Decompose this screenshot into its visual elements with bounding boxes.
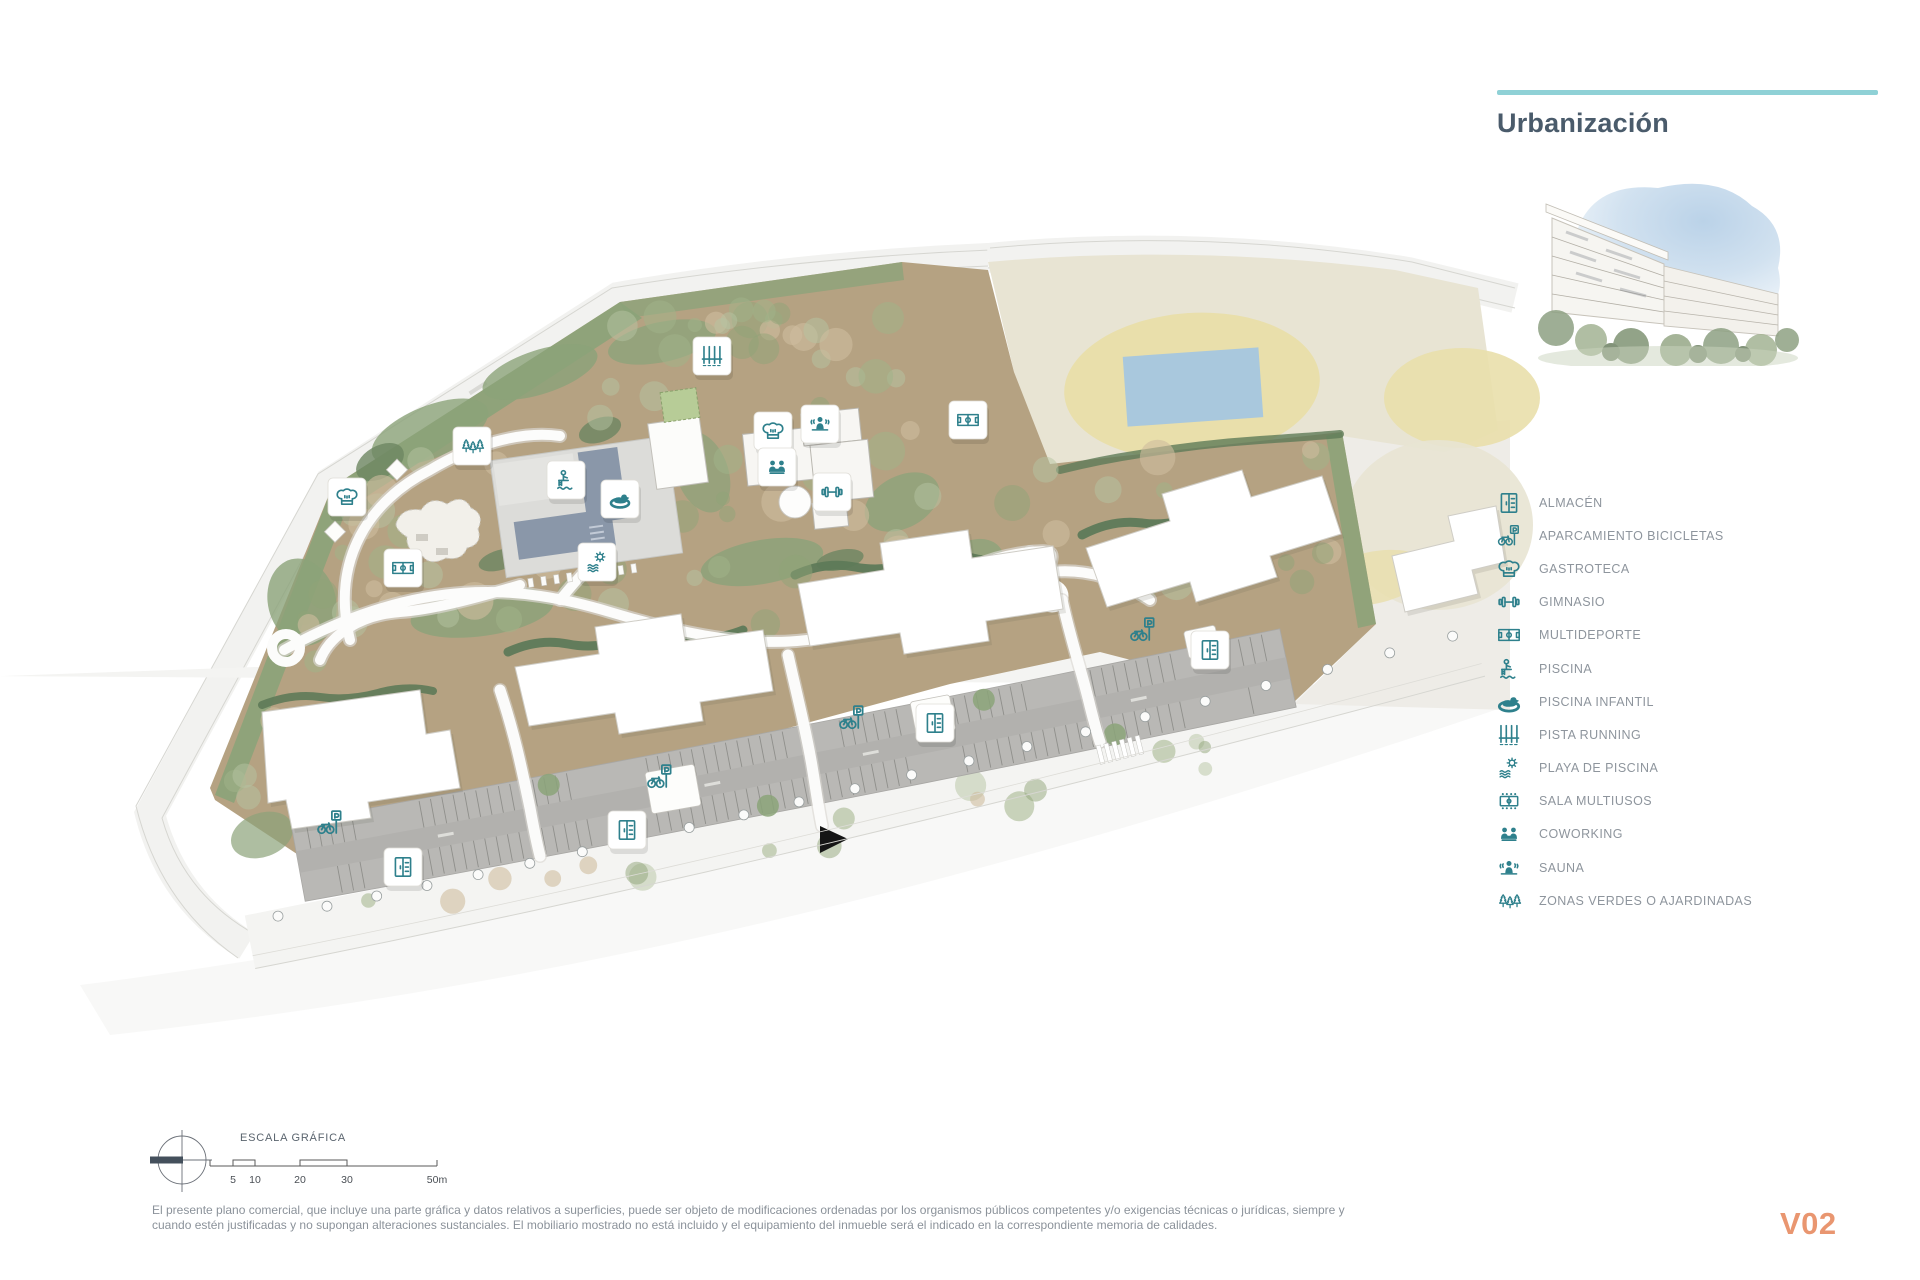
tree: [1198, 762, 1212, 776]
marker-sauna: [801, 405, 841, 448]
legend-item-label: ZONAS VERDES O AJARDINADAS: [1539, 894, 1752, 908]
pista-running-icon: [1492, 722, 1526, 748]
legend-item-sala-multiusos: SALA MULTIUSOS: [1492, 785, 1752, 818]
pool-house: [648, 417, 709, 490]
street-tree: [1140, 712, 1150, 722]
scale-tick-label: 50m: [427, 1174, 447, 1186]
marker-almacen: [1191, 631, 1231, 674]
tree: [658, 334, 691, 367]
street-tree: [850, 784, 860, 794]
page-title: Urbanización: [1497, 108, 1669, 139]
marker-gimnasio: [813, 473, 853, 516]
legend-item-pista-running: PISTA RUNNING: [1492, 718, 1752, 751]
tree: [587, 405, 613, 431]
legend-item-label: PLAYA DE PISCINA: [1539, 761, 1658, 775]
street-tree: [525, 858, 535, 868]
building-render-image: [1536, 166, 1800, 366]
tree: [872, 302, 904, 334]
street-tree: [907, 770, 917, 780]
parking-island: [538, 774, 560, 796]
legend-item-label: PISTA RUNNING: [1539, 728, 1641, 742]
tree: [914, 483, 941, 510]
legend-item-gimnasio: GIMNASIO: [1492, 586, 1752, 619]
legend-item-label: MULTIDEPORTE: [1539, 628, 1641, 642]
legend-item-zonas-verdes: ZONAS VERDES O AJARDINADAS: [1492, 884, 1752, 917]
sports-court: [660, 388, 700, 423]
marker-almacen: [608, 811, 648, 854]
legend-item-almacen: ALMACÉN: [1492, 486, 1752, 519]
tree: [308, 580, 337, 609]
legend-item-aparcamiento-bicicletas: APARCAMIENTO BICICLETAS: [1492, 519, 1752, 552]
amenities-legend: ALMACÉNAPARCAMIENTO BICICLETASGASTROTECA…: [1492, 486, 1752, 917]
tree: [1302, 441, 1319, 458]
tree: [1024, 779, 1047, 802]
legend-item-label: GASTROTECA: [1539, 562, 1630, 576]
tree: [1152, 740, 1175, 763]
street-tree: [322, 901, 332, 911]
tree: [719, 506, 735, 522]
north-compass: [150, 1130, 212, 1192]
legend-item-label: SAUNA: [1539, 861, 1584, 875]
legend-item-label: GIMNASIO: [1539, 595, 1605, 609]
legend-item-label: SALA MULTIUSOS: [1539, 794, 1652, 808]
version-label: V02: [1780, 1206, 1837, 1242]
street-tree: [577, 847, 587, 857]
legend-item-coworking: COWORKING: [1492, 818, 1752, 851]
marker-gastroteca: [328, 478, 368, 521]
legend-item-piscina: PISCINA: [1492, 652, 1752, 685]
graphic-scale: [210, 1160, 437, 1166]
disclaimer: El presente plano comercial, que incluye…: [152, 1203, 1442, 1233]
legend-item-gastroteca: GASTROTECA: [1492, 552, 1752, 585]
tree: [488, 867, 511, 890]
legend-item-multideporte: MULTIDEPORTE: [1492, 619, 1752, 652]
tree: [1095, 476, 1122, 503]
marker-pista-running: [693, 337, 733, 380]
marker-coworking: [758, 448, 798, 491]
tree: [644, 300, 677, 333]
tree: [496, 606, 522, 632]
zonas-verdes-icon: [1492, 888, 1526, 914]
gimnasio-icon: [1492, 589, 1526, 615]
legend-item-playa-de-piscina: PLAYA DE PISCINA: [1492, 752, 1752, 785]
street-tree: [794, 797, 804, 807]
scale-tick-label: 30: [341, 1174, 353, 1186]
scale-bar: ESCALA GRÁFICA 510203050m: [140, 1118, 500, 1198]
scale-tick-label: 10: [249, 1174, 261, 1186]
marker-piscina: [547, 461, 587, 504]
marker-almacen: [916, 704, 956, 747]
tree: [233, 764, 257, 788]
tree: [688, 318, 702, 332]
tree: [602, 378, 620, 396]
sala-multiusos-icon: [1492, 788, 1526, 814]
tree: [1140, 440, 1176, 476]
tree: [714, 445, 743, 474]
street-tree: [1323, 664, 1333, 674]
street-tree: [372, 891, 382, 901]
disclaimer-line1: El presente plano comercial, que incluye…: [152, 1203, 1345, 1217]
multideporte-icon: [1492, 622, 1526, 648]
coworking-icon: [1492, 821, 1526, 847]
tree: [1290, 570, 1315, 595]
street-tree: [1448, 631, 1458, 641]
street-tree: [1261, 681, 1271, 691]
legend-item-label: PISCINA INFANTIL: [1539, 695, 1654, 709]
tree: [1043, 520, 1070, 547]
street-tree: [1200, 696, 1210, 706]
street-tree: [1385, 648, 1395, 658]
tree: [867, 432, 906, 471]
street-tree: [739, 810, 749, 820]
tree: [625, 862, 648, 885]
tree: [579, 856, 597, 874]
sauna-icon: [1492, 855, 1526, 881]
street-tree: [473, 870, 483, 880]
title-rule: [1497, 90, 1878, 95]
tree: [901, 421, 920, 440]
almacen-icon: [1492, 490, 1526, 516]
tree: [721, 312, 738, 329]
playa-de-piscina-icon: [1492, 755, 1526, 781]
legend-item-label: ALMACÉN: [1539, 496, 1603, 510]
parking-island: [757, 795, 779, 817]
tree: [783, 325, 803, 345]
marker-multideporte: [949, 401, 989, 444]
marker-piscina-infantil: [601, 480, 641, 523]
marker-zonas-verdes: [453, 427, 493, 470]
tree: [544, 870, 561, 887]
aparcamiento-bicicletas-icon: [1492, 523, 1526, 549]
marker-multideporte: [384, 549, 424, 592]
tree: [687, 570, 703, 586]
legend-item-piscina-infantil: PISCINA INFANTIL: [1492, 685, 1752, 718]
gastroteca-icon: [1492, 556, 1526, 582]
street-tree: [1022, 742, 1032, 752]
tree: [708, 556, 730, 578]
marker-almacen: [384, 848, 424, 891]
legend-item-label: COWORKING: [1539, 827, 1623, 841]
street-tree: [273, 911, 283, 921]
marker-playa-de-piscina: [578, 543, 618, 586]
tree: [859, 359, 894, 394]
tree: [440, 889, 465, 914]
scale-title: ESCALA GRÁFICA: [240, 1132, 346, 1144]
tree: [607, 311, 638, 342]
tree: [366, 580, 383, 597]
parking-island: [973, 689, 995, 711]
scale-tick-label: 5: [230, 1174, 236, 1186]
tree: [716, 492, 730, 506]
tree: [994, 485, 1030, 521]
street-tree: [684, 823, 694, 833]
piscina-icon: [1492, 656, 1526, 682]
disclaimer-line2: cuando estén justificadas y no supongan …: [152, 1218, 1217, 1232]
street-tree: [964, 756, 974, 766]
tree: [1033, 457, 1059, 483]
brochure-page: Urbanización: [0, 0, 1920, 1280]
legend-item-label: APARCAMIENTO BICICLETAS: [1539, 529, 1724, 543]
tree: [753, 300, 776, 323]
tree: [819, 328, 852, 361]
scale-tick-label: 20: [294, 1174, 306, 1186]
legend-item-sauna: SAUNA: [1492, 851, 1752, 884]
legend-item-label: PISCINA: [1539, 662, 1592, 676]
street-tree: [1081, 727, 1091, 737]
piscina-infantil-icon: [1492, 688, 1526, 716]
